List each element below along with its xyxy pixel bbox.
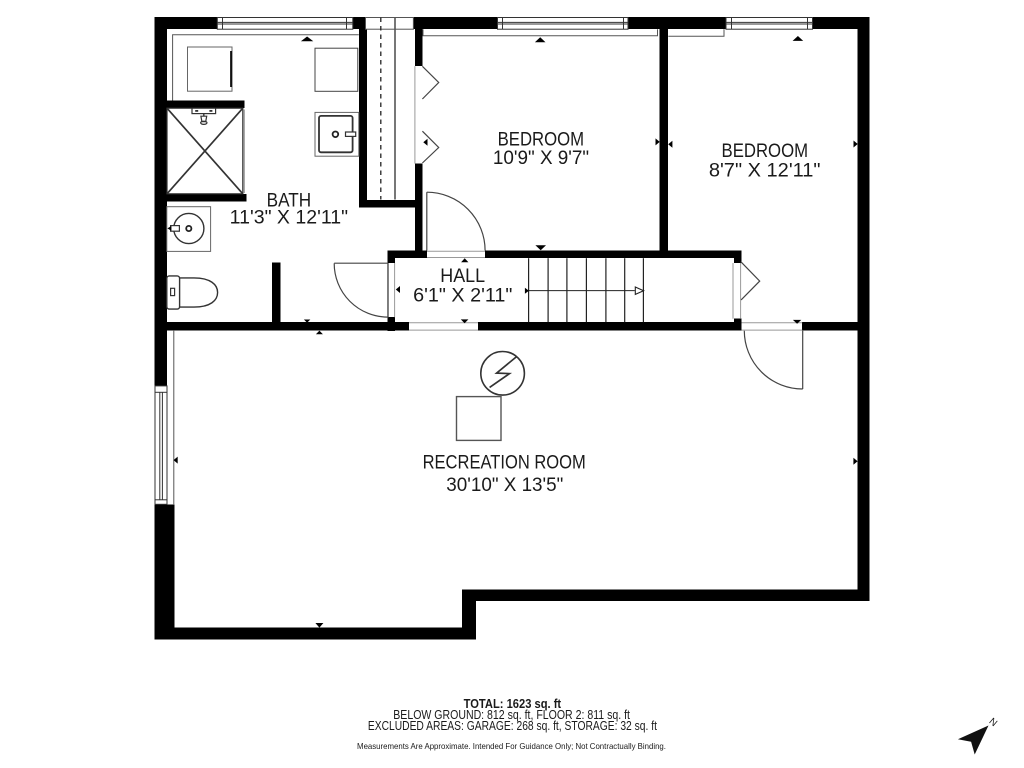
- svg-text:RECREATION ROOM: RECREATION ROOM: [423, 453, 586, 474]
- svg-text:11'3" X 12'11": 11'3" X 12'11": [230, 208, 348, 229]
- svg-text:10'9" X 9'7": 10'9" X 9'7": [493, 148, 589, 169]
- svg-text:6'1" X 2'11": 6'1" X 2'11": [413, 285, 512, 306]
- svg-text:Measurements Are Approximate.: Measurements Are Approximate. Intended F…: [357, 741, 666, 751]
- svg-text:8'7" X 12'11": 8'7" X 12'11": [709, 160, 821, 181]
- svg-text:30'10" X 13'5": 30'10" X 13'5": [446, 475, 563, 496]
- svg-text:EXCLUDED AREAS: GARAGE: 268 sq: EXCLUDED AREAS: GARAGE: 268 sq. ft, STOR…: [368, 719, 658, 733]
- svg-text:HALL: HALL: [440, 266, 485, 287]
- svg-text:BEDROOM: BEDROOM: [722, 141, 809, 162]
